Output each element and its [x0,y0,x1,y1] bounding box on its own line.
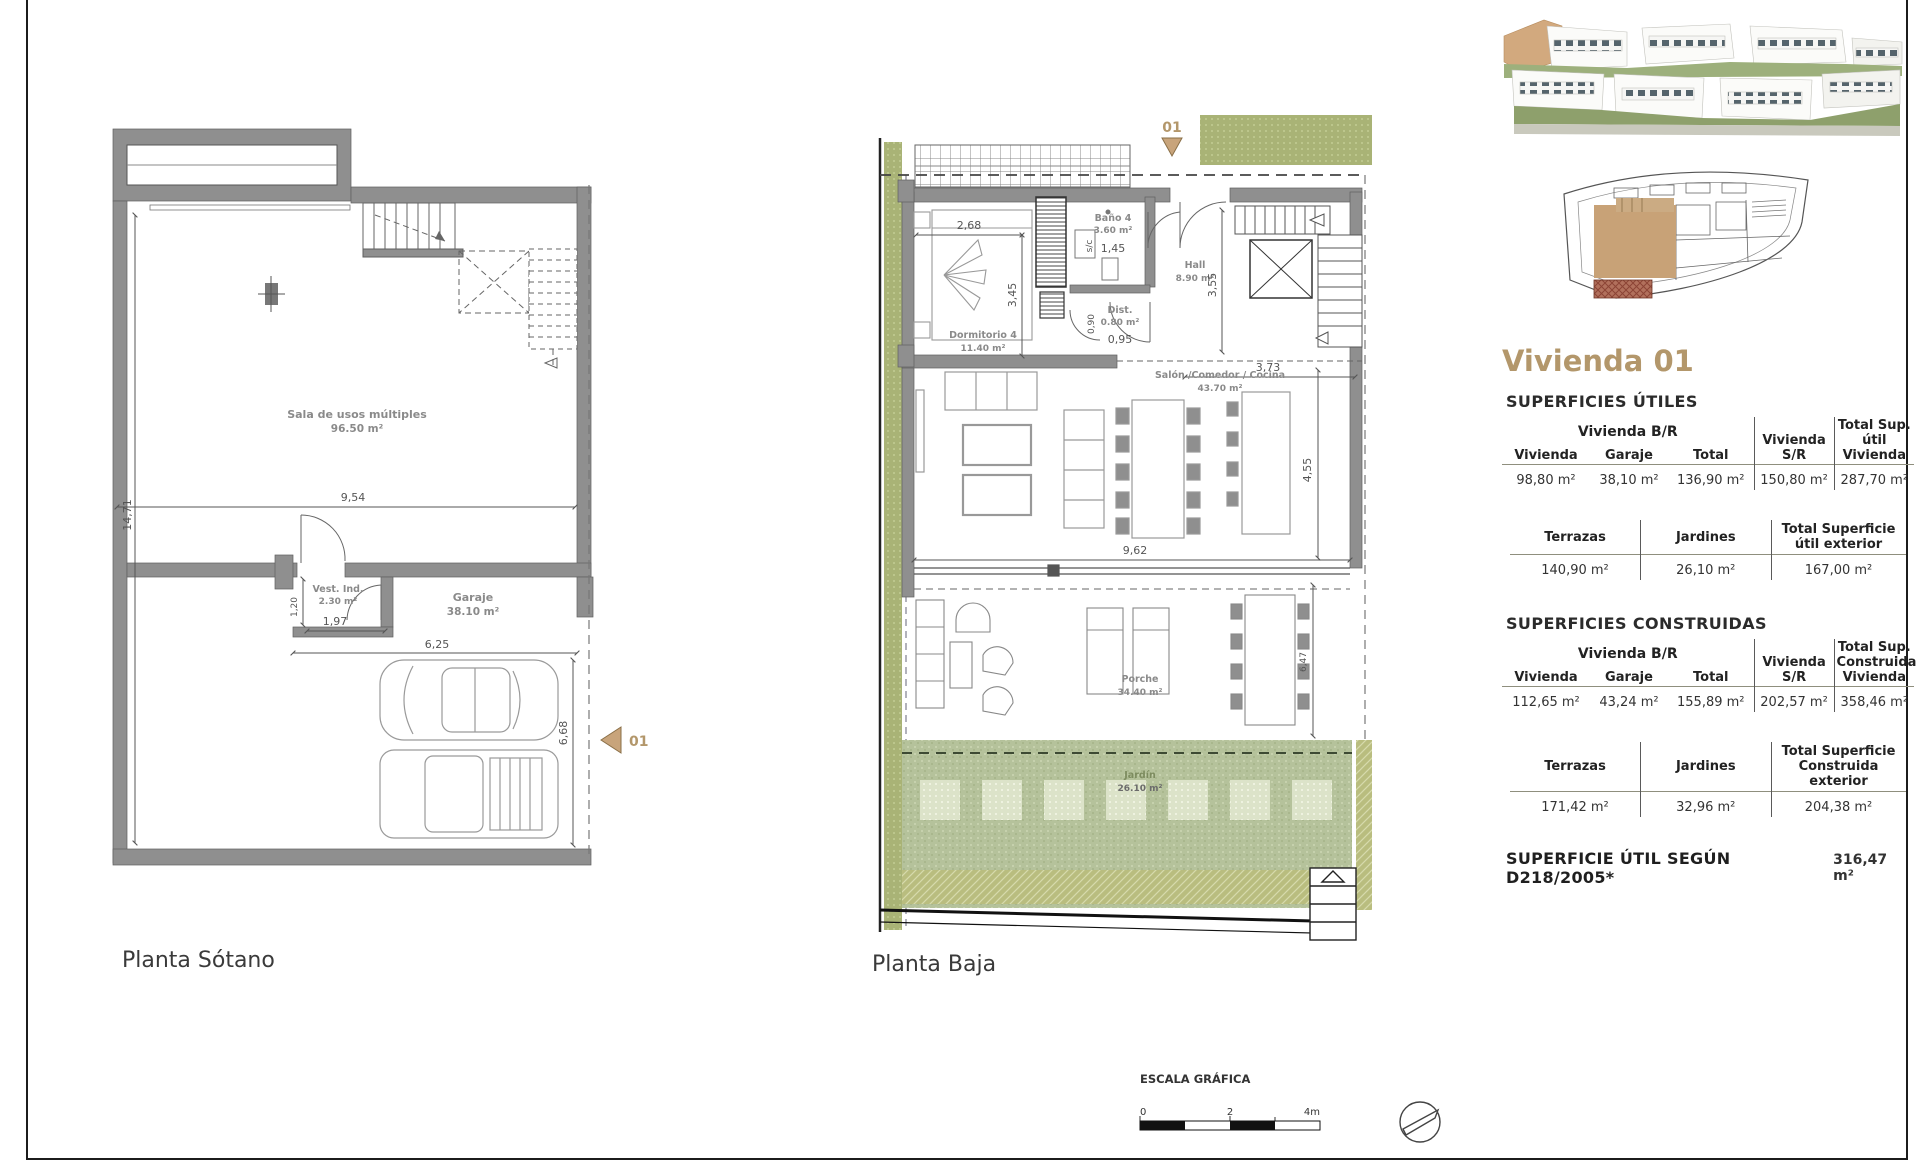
col-vivienda: Vivienda [1502,442,1590,465]
footnote-label: SUPERFICIE ÚTIL SEGÚN D218/2005* [1506,849,1833,887]
col-terrazas: Terrazas [1510,742,1641,792]
salon-furniture [916,372,1290,538]
plan-sheet: Sala de usos múltiples 96.50 m² 9,54 14,… [0,0,1920,1166]
value-terrazas-util: 140,90 m² [1510,555,1641,581]
garden-top-right [1200,115,1372,165]
aerial-render [1492,8,1912,153]
heading-superficies-utiles: SUPERFICIES ÚTILES [1506,392,1914,411]
col-total-sup-util: Total Sup. útil Vivienda [1834,417,1914,465]
floorplan-sotano: Sala de usos múltiples 96.50 m² 9,54 14,… [95,115,655,915]
room-label-sala: Sala de usos múltiples [287,408,427,421]
col-garaje: Garaje [1590,442,1668,465]
room-area-porche: 34.40 m² [1118,688,1163,698]
room-label-salon: Salón /Comedor / Cocina [1155,370,1285,381]
value-cons-sr: 202,57 m² [1754,687,1834,713]
dim-dorm-width: 2,68 [957,219,982,232]
sotano-door [301,515,345,563]
escala-grafica-label: ESCALA GRÁFICA [1140,1072,1250,1086]
dim-left-height: 14,71 [121,499,134,531]
garden-strip-left [884,142,902,930]
room-label-vest: Vest. Ind. [312,584,363,595]
dim-salon-height: 4,55 [1301,458,1314,483]
superficie-util-footnote: SUPERFICIE ÚTIL SEGÚN D218/2005* 316,47 … [1506,849,1910,887]
dim-garaje-width: 6,25 [425,638,450,651]
value-cons-garaje: 43,24 m² [1590,687,1668,713]
value-cons-total-sup: 358,46 m² [1834,687,1914,713]
value-jardines-util: 26,10 m² [1641,555,1772,581]
heading-superficies-construidas: SUPERFICIES CONSTRUIDAS [1506,614,1914,633]
dim-garaje-height: 6,68 [557,721,570,746]
value-util-garaje: 38,10 m² [1590,465,1668,491]
value-util-vivienda: 98,80 m² [1502,465,1590,491]
room-area-jardin: 26.10 m² [1118,784,1163,794]
scale-tick-0: 0 [1140,1107,1146,1118]
baja-stairs [1235,206,1362,347]
dim-sala-width: 9,54 [341,491,366,504]
col-garaje: Garaje [1590,664,1668,687]
value-cons-total: 155,89 m² [1668,687,1754,713]
garden [880,740,1352,934]
value-total-util-exterior: 167,00 m² [1771,555,1905,581]
dim-porche-height: 6,47 [1299,652,1309,672]
caption-planta-baja: Planta Baja [872,952,996,977]
exterior-stair [1310,868,1356,940]
dim-dist-width: 0,95 [1108,333,1133,346]
room-area-garaje: 38.10 m² [447,606,500,618]
porche-furniture [916,595,1309,725]
room-label-jardin: Jardín [1123,770,1156,781]
sotano-stairs [363,203,577,368]
room-label-dist: Dist. [1108,305,1133,316]
col-total-construida-exterior: Total Superficie Construida exterior [1771,742,1905,792]
room-area-dist: 0.80 m² [1101,318,1140,328]
room-area-sala: 96.50 m² [331,423,384,435]
dim-dorm-height: 3,45 [1006,283,1019,308]
table-superficies-utiles: Vivienda B/R Vivienda S/R Total Sup. úti… [1502,417,1914,490]
room-label-hall: Hall [1185,260,1206,271]
dim-bano-width: 1,45 [1101,242,1126,255]
scale-bar-segments [1140,1116,1320,1130]
ground-front [1514,104,1900,136]
col-total: Total [1668,442,1754,465]
value-total-construida-exterior: 204,38 m² [1771,792,1905,818]
site-key-plan [1556,150,1816,310]
dim-vest-width: 1,97 [323,615,348,628]
table-row: 112,65 m² 43,24 m² 155,89 m² 202,57 m² 3… [1502,687,1914,713]
col-vivienda-sr: Vivienda S/R [1754,417,1834,465]
table-row: 171,42 m² 32,96 m² 204,38 m² [1510,792,1906,818]
value-terrazas-cons: 171,42 m² [1510,792,1641,818]
room-label-bano: Baño 4 [1095,213,1132,224]
table-util-exterior: Terrazas Jardines Total Superficie útil … [1510,520,1906,580]
label-sc: s/c [1085,240,1095,253]
room-label-garaje: Garaje [453,591,494,604]
col-jardines: Jardines [1641,742,1772,792]
col-vivienda-sr: Vivienda S/R [1754,639,1834,687]
dim-vest-height: 1,20 [290,597,300,617]
room-area-salon: 43.70 m² [1198,384,1243,394]
panel-title: Vivienda 01 [1502,344,1914,378]
col-group-vivienda-br: Vivienda B/R [1502,639,1754,664]
scale-bar: 0 2 4m [1134,1104,1344,1140]
col-vivienda: Vivienda [1502,664,1590,687]
value-util-sr: 150,80 m² [1754,465,1834,491]
room-area-vest: 2.30 m² [319,597,358,607]
dim-salon-width: 9,62 [1123,544,1148,557]
value-cons-vivienda: 112,65 m² [1502,687,1590,713]
sotano-column [258,276,285,312]
wardrobe [1036,197,1066,318]
vivienda-info-panel: Vivienda 01 SUPERFICIES ÚTILES Vivienda … [1502,344,1914,887]
unit-marker-sotano: 01 [601,727,648,753]
room-area-bano: 3.60 m² [1094,226,1133,236]
table-row: 140,90 m² 26,10 m² 167,00 m² [1510,555,1906,581]
col-terrazas: Terrazas [1510,520,1641,555]
footnote-value: 316,47 m² [1833,852,1910,884]
value-util-total: 136,90 m² [1668,465,1754,491]
car-suv [380,750,558,838]
col-group-vivienda-br: Vivienda B/R [1502,417,1754,442]
unit-marker-baja: 01 [1162,120,1182,156]
col-total-util-exterior: Total Superficie útil exterior [1771,520,1905,555]
value-util-total-sup: 287,70 m² [1834,465,1914,491]
scale-tick-4m: 4m [1304,1107,1320,1118]
dim-hall-height: 3,55 [1206,273,1219,298]
garden-strip-right [1356,740,1372,910]
dim-dist-height: 0,90 [1087,314,1097,334]
col-jardines: Jardines [1641,520,1772,555]
glass-doors [914,565,1350,576]
col-total-sup-construida: Total Sup. Construida Vivienda [1834,639,1914,687]
room-label-porche: Porche [1121,674,1158,685]
col-total: Total [1668,664,1754,687]
room-area-dormitorio: 11.40 m² [961,344,1006,354]
floorplan-baja: 01 [850,80,1390,955]
site-highlight-unit [1594,198,1676,298]
table-construida-exterior: Terrazas Jardines Total Superficie Const… [1510,742,1906,817]
caption-planta-sotano: Planta Sótano [122,948,275,973]
car-sports [380,660,558,740]
table-superficies-construidas: Vivienda B/R Vivienda S/R Total Sup. Con… [1502,639,1914,712]
north-compass-icon [1394,1096,1446,1148]
unit-marker-label: 01 [629,734,648,750]
table-row: 98,80 m² 38,10 m² 136,90 m² 150,80 m² 28… [1502,465,1914,491]
room-label-dormitorio: Dormitorio 4 [949,330,1017,341]
pergola [915,145,1130,194]
unit-marker-label: 01 [1162,120,1181,136]
value-jardines-cons: 32,96 m² [1641,792,1772,818]
